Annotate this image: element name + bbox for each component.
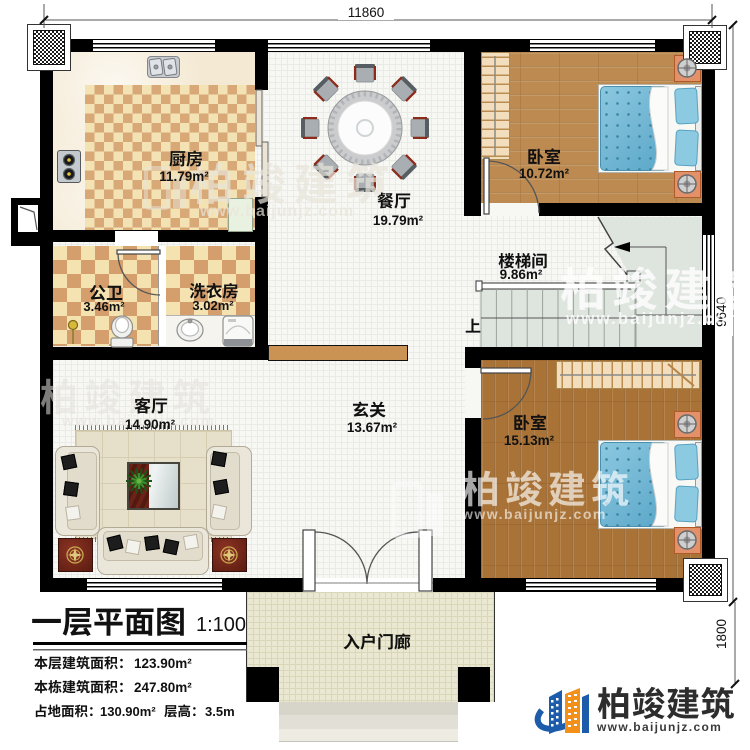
svg-text:14.90m²: 14.90m²	[125, 417, 176, 432]
svg-text:9640: 9640	[714, 297, 729, 327]
svg-text:11.79m²: 11.79m²	[159, 169, 209, 184]
svg-text:1800: 1800	[714, 619, 729, 649]
svg-text:19.79m²: 19.79m²	[373, 213, 424, 228]
svg-text:3.02m²: 3.02m²	[192, 298, 234, 313]
svg-text:3.5m: 3.5m	[205, 704, 235, 719]
svg-text:1:100: 1:100	[196, 614, 246, 636]
svg-text:3.46m²: 3.46m²	[83, 299, 125, 314]
svg-text:www.baijunjz.com: www.baijunjz.com	[565, 309, 745, 328]
svg-text:10.72m²: 10.72m²	[519, 166, 570, 181]
svg-text:9.86m²: 9.86m²	[500, 267, 543, 282]
svg-text:www.baijunjz.com: www.baijunjz.com	[596, 720, 722, 734]
svg-text:15.13m²: 15.13m²	[504, 433, 555, 448]
svg-text:www.baijunjz.com: www.baijunjz.com	[461, 506, 607, 522]
svg-text:11860: 11860	[348, 5, 385, 20]
svg-text:www.baijunjz.com: www.baijunjz.com	[61, 413, 215, 430]
svg-text:247.80m²: 247.80m²	[134, 680, 192, 695]
svg-text:130.90m²: 130.90m²	[100, 704, 156, 719]
svg-text:123.90m²: 123.90m²	[134, 656, 192, 671]
svg-text:www.baijunjz.com: www.baijunjz.com	[199, 203, 354, 220]
svg-text:13.67m²: 13.67m²	[347, 420, 398, 435]
